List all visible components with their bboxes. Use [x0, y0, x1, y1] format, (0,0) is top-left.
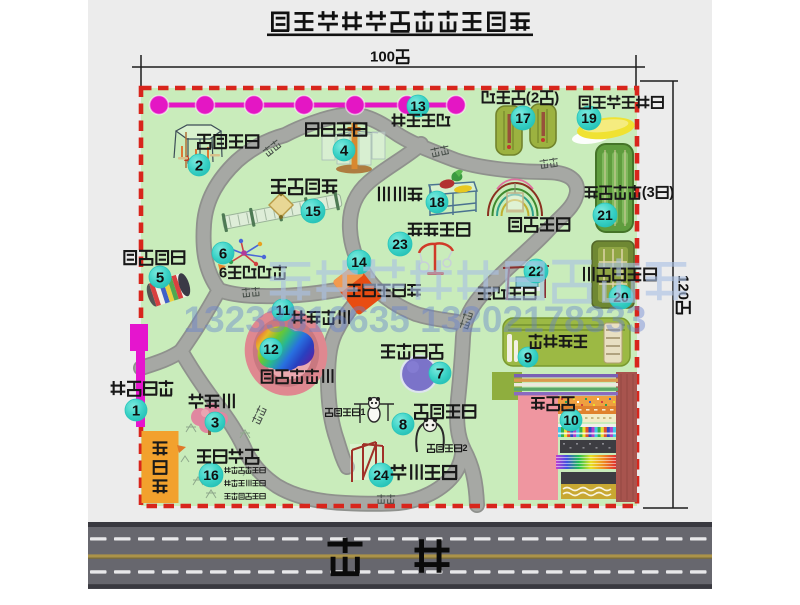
svg-text:): ) — [554, 89, 559, 106]
svg-text:23: 23 — [392, 236, 408, 252]
svg-text:9: 9 — [524, 349, 532, 366]
svg-text:7: 7 — [436, 365, 444, 382]
svg-text:): ) — [669, 185, 674, 201]
svg-text:3: 3 — [211, 414, 219, 431]
svg-text:1: 1 — [360, 407, 365, 417]
svg-text:0: 0 — [378, 48, 386, 65]
svg-text:12: 12 — [263, 341, 279, 357]
svg-text:3: 3 — [647, 185, 655, 201]
svg-text:17: 17 — [515, 110, 531, 126]
svg-text:0: 0 — [387, 48, 395, 65]
svg-text:2: 2 — [195, 157, 203, 174]
svg-text:4: 4 — [340, 142, 349, 159]
svg-text:21: 21 — [597, 207, 613, 223]
svg-text:13233816635 13202178333: 13233816635 13202178333 — [184, 299, 647, 340]
svg-text:24: 24 — [373, 467, 389, 483]
svg-text:2: 2 — [531, 89, 539, 106]
svg-text:18: 18 — [429, 194, 445, 210]
svg-text:6: 6 — [219, 264, 227, 281]
svg-text:1: 1 — [370, 48, 378, 65]
svg-text:1: 1 — [132, 402, 140, 419]
svg-text:10: 10 — [563, 412, 579, 428]
svg-text:5: 5 — [156, 269, 164, 286]
svg-text:13: 13 — [410, 98, 426, 114]
svg-text:19: 19 — [581, 110, 597, 126]
svg-text:6: 6 — [219, 245, 227, 262]
svg-text:2: 2 — [462, 443, 467, 453]
svg-text:15: 15 — [305, 203, 321, 219]
svg-text:8: 8 — [399, 416, 407, 433]
svg-text:16: 16 — [203, 467, 219, 483]
